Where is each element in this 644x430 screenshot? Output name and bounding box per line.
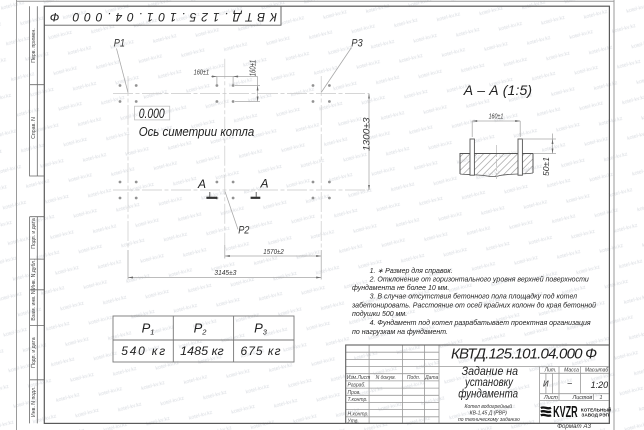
svg-text:Инв. N подл.: Инв. N подл. xyxy=(31,386,37,417)
svg-text:ЗАВОД РЭП: ЗАВОД РЭП xyxy=(581,413,609,418)
svg-text:2. Отклонение от горизонтально: 2. Отклонение от горизонтального уровня … xyxy=(369,276,589,284)
svg-text:А: А xyxy=(197,177,206,191)
svg-text:1300±3: 1300±3 xyxy=(361,117,372,151)
svg-text:Подп.: Подп. xyxy=(407,375,420,381)
svg-text:Т.контр.: Т.контр. xyxy=(348,397,368,403)
svg-text:КОТЕЛЬНЫЙ: КОТЕЛЬНЫЙ xyxy=(581,405,612,412)
svg-text:Н.контр.: Н.контр. xyxy=(348,411,369,417)
svg-text:Р2: Р2 xyxy=(238,225,249,237)
svg-text:1. ∗ Размер для справок.: 1. ∗ Размер для справок. xyxy=(370,267,453,275)
svg-text:540 кг: 540 кг xyxy=(121,344,165,358)
svg-text:Изм.Лист: Изм.Лист xyxy=(347,375,371,381)
svg-text:160±1: 160±1 xyxy=(248,60,258,77)
svg-text:Р3: Р3 xyxy=(351,38,363,50)
svg-text:Ось симетрии котла: Ось симетрии котла xyxy=(139,125,255,139)
svg-text:160±1: 160±1 xyxy=(194,70,210,77)
svg-text:подушки 500 мм.: подушки 500 мм. xyxy=(352,310,407,318)
svg-text:А: А xyxy=(260,177,269,191)
svg-text:3145±3: 3145±3 xyxy=(214,270,236,277)
svg-text:1485 кг: 1485 кг xyxy=(180,344,224,358)
svg-text:фундамента: фундамента xyxy=(458,389,518,401)
svg-text:1:20: 1:20 xyxy=(591,380,609,390)
svg-text:КВ-1,45 Д (РВР): КВ-1,45 Д (РВР) xyxy=(470,410,508,416)
svg-text:1: 1 xyxy=(600,395,603,401)
svg-text:Формат А3: Формат А3 xyxy=(557,423,591,430)
svg-text:фундамента не более 10 мм.: фундамента не более 10 мм. xyxy=(352,284,449,292)
svg-text:Подп. и дата: Подп. и дата xyxy=(31,337,37,368)
svg-text:Задание на: Задание на xyxy=(462,366,518,378)
svg-text:–: – xyxy=(566,379,572,388)
svg-text:Справ. N: Справ. N xyxy=(31,117,37,139)
svg-text:Взам. инв. N: Взам. инв. N xyxy=(31,290,37,321)
svg-text:Лист: Лист xyxy=(543,395,558,401)
svg-text:Разраб.: Разраб. xyxy=(348,383,366,389)
svg-text:Утв.: Утв. xyxy=(348,419,359,425)
svg-text:по техническому заданию: по техническому заданию xyxy=(458,417,520,423)
svg-text:Инв. N дубл.: Инв. N дубл. xyxy=(31,259,37,289)
svg-text:И: И xyxy=(543,380,549,389)
svg-text:по нагрузкам на фундамент.: по нагрузкам на фундамент. xyxy=(352,328,448,336)
svg-text:160±1: 160±1 xyxy=(489,114,504,121)
svg-text:N докум.: N докум. xyxy=(376,375,396,381)
svg-text:675 кг: 675 кг xyxy=(241,344,281,358)
svg-text:Масса: Масса xyxy=(564,368,579,374)
svg-text:А – А (1:5): А – А (1:5) xyxy=(463,82,532,98)
svg-text:Листов: Листов xyxy=(572,395,593,401)
svg-text:0.000: 0.000 xyxy=(139,106,165,121)
svg-text:4. Фундамент под котел разраба: 4. Фундамент под котел разрабатывает про… xyxy=(370,319,591,327)
svg-text:КВТД.125.101.04.000 Ф: КВТД.125.101.04.000 Ф xyxy=(451,346,597,363)
svg-text:установку: установку xyxy=(464,377,514,389)
svg-text:KVZR: KVZR xyxy=(553,404,578,421)
svg-text:50±1: 50±1 xyxy=(541,157,551,176)
svg-text:Масштаб: Масштаб xyxy=(585,368,609,374)
svg-text:Котел водогрейный: Котел водогрейный xyxy=(465,403,513,410)
svg-text:Лит.: Лит. xyxy=(544,368,557,374)
svg-text:1570±2: 1570±2 xyxy=(263,249,284,256)
svg-text:3. В случае отсутствия бетонно: 3. В случае отсутствия бетонного пола пл… xyxy=(370,293,578,301)
svg-text:Пров.: Пров. xyxy=(348,390,361,396)
svg-text:Подп. и дата: Подп. и дата xyxy=(31,218,37,249)
svg-text:Дата: Дата xyxy=(424,375,438,381)
svg-text:Р1: Р1 xyxy=(114,38,125,50)
svg-text:забетонировать. Расстояние от: забетонировать. Расстояние от осей крайн… xyxy=(351,302,596,310)
svg-text:Перв. примен.: Перв. примен. xyxy=(31,28,37,63)
